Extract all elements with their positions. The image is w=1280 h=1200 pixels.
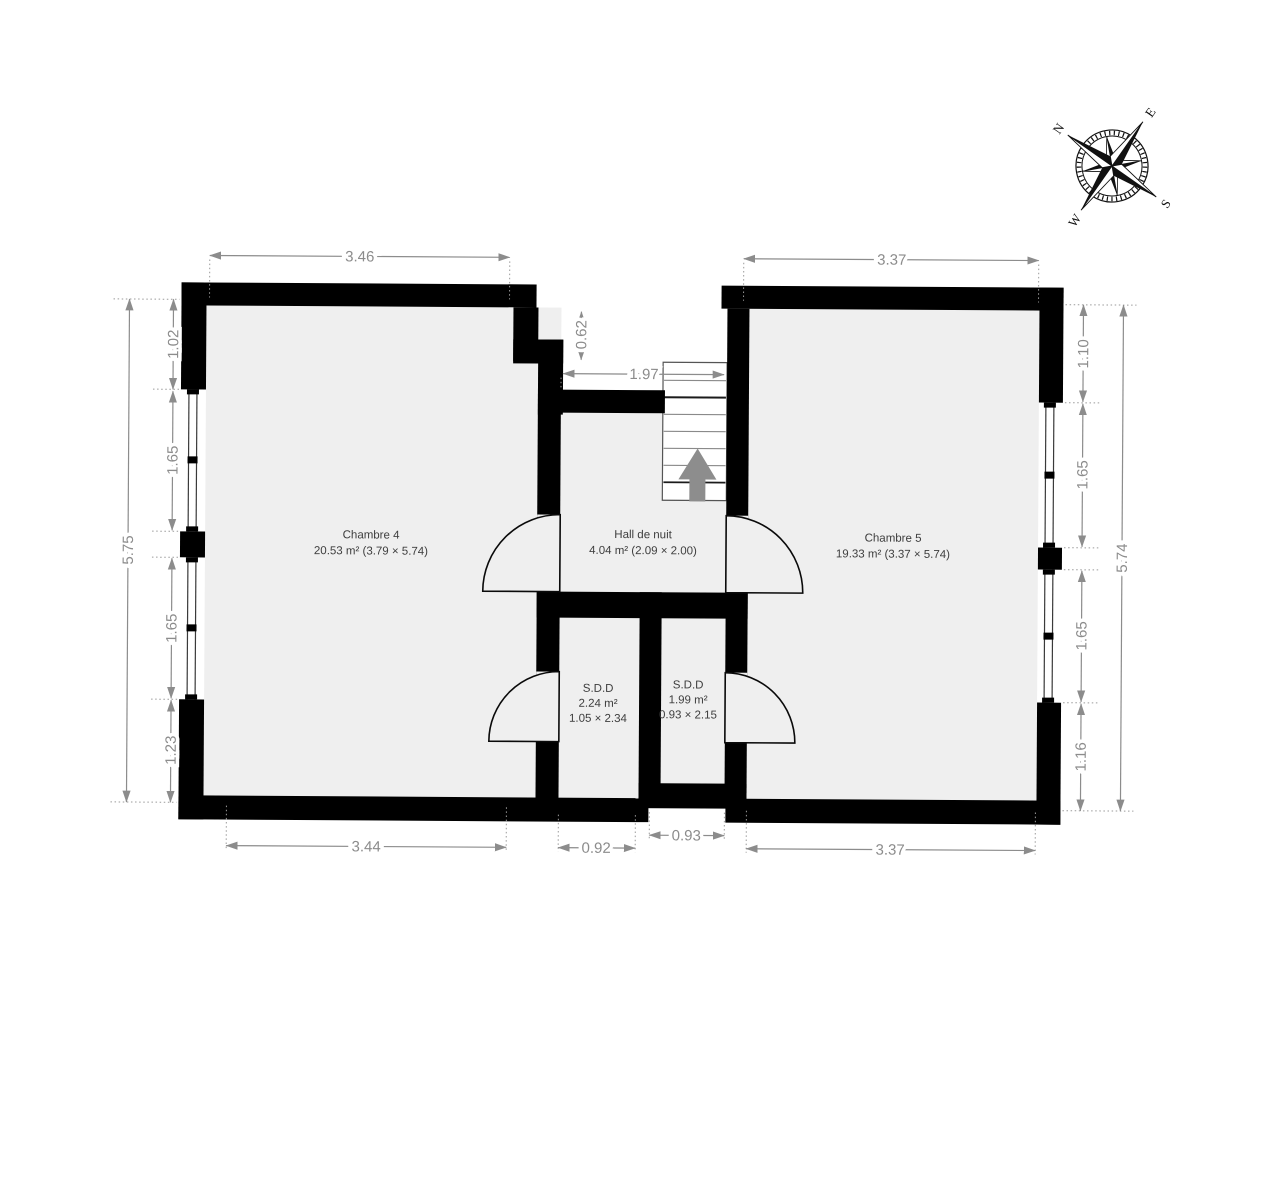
dim-left-seg-4: 1.23	[163, 736, 180, 765]
dim-hall-width: 1.97	[629, 366, 658, 383]
dim-right-seg-1: 1.10	[1075, 339, 1092, 368]
dim-right-total: 5.74	[1114, 543, 1131, 572]
room-label-chambre4-area: 20.53 m² (3.79 × 5.74)	[314, 545, 428, 558]
room-label-sdd2-area: 1.99 m²	[669, 694, 708, 706]
window-left-2	[185, 557, 198, 699]
wall-hall-top	[538, 389, 665, 413]
dim-bottom-sdd1: 0.92	[582, 840, 611, 857]
compass-label-south: S	[1157, 196, 1173, 211]
room-label-chambre5-name: Chambre 5	[865, 532, 922, 544]
dim-bottom-left: 3.44	[352, 838, 381, 855]
wall-top-left	[181, 282, 536, 307]
dim-top-left: 3.46	[345, 248, 374, 265]
wall-right-upper	[1039, 288, 1064, 403]
compass-label-north: N	[1050, 120, 1068, 137]
dim-bottom-right: 3.37	[876, 842, 905, 859]
room-label-sdd2-size: 0.93 × 2.15	[659, 709, 717, 721]
floor-plan-canvas: 3.46 3.37 0.62 1.97 5.75 1.02 1.65 1.65 …	[0, 0, 1280, 1200]
wall-bottom-left	[178, 795, 648, 822]
room-label-sdd1-area: 2.24 m²	[579, 698, 618, 710]
compass-rose-icon: N E S W	[1011, 67, 1212, 267]
room-label-hall-name: Hall de nuit	[614, 529, 672, 541]
window-right-1	[1043, 403, 1056, 548]
dim-right-seg-2: 1.65	[1074, 460, 1091, 489]
wall-bottom-right	[725, 799, 1060, 825]
dim-left-seg-1: 1.02	[165, 330, 182, 359]
wall-sdd-divider	[638, 592, 661, 800]
room-label-sdd1-size: 1.05 × 2.34	[569, 713, 628, 725]
window-left-1	[186, 389, 199, 531]
room-label-sdd1-name: S.D.D	[583, 683, 614, 695]
compass-label-west: W	[1065, 210, 1085, 229]
dim-top-right: 3.37	[877, 252, 906, 269]
wall-right-pier	[1038, 548, 1062, 570]
window-right-2	[1042, 570, 1055, 703]
wall-left-pier	[180, 531, 205, 557]
dim-left-seg-3: 1.65	[163, 614, 180, 643]
dim-left-total: 5.75	[120, 535, 137, 564]
dim-step: 0.62	[573, 320, 590, 349]
compass-cardinal-points	[1037, 91, 1187, 241]
dim-right-seg-3: 1.65	[1073, 621, 1090, 650]
room-label-chambre5-area: 19.33 m² (3.37 × 5.74)	[836, 548, 950, 561]
wall-left-upper	[181, 282, 207, 389]
room-label-hall-area: 4.04 m² (2.09 × 2.00)	[589, 545, 697, 558]
floor-plan: 3.46 3.37 0.62 1.97 5.75 1.02 1.65 1.65 …	[110, 247, 1137, 860]
dim-bottom-sdd2: 0.93	[672, 827, 701, 844]
dim-right-seg-4: 1.16	[1073, 742, 1090, 771]
wall-top-right	[721, 286, 1063, 311]
room-label-sdd2-name: S.D.D	[673, 679, 704, 691]
dim-left-seg-2: 1.65	[164, 446, 181, 475]
compass-label-east: E	[1142, 105, 1159, 120]
staircase	[662, 362, 727, 501]
room-label-chambre4-name: Chambre 4	[343, 529, 401, 541]
